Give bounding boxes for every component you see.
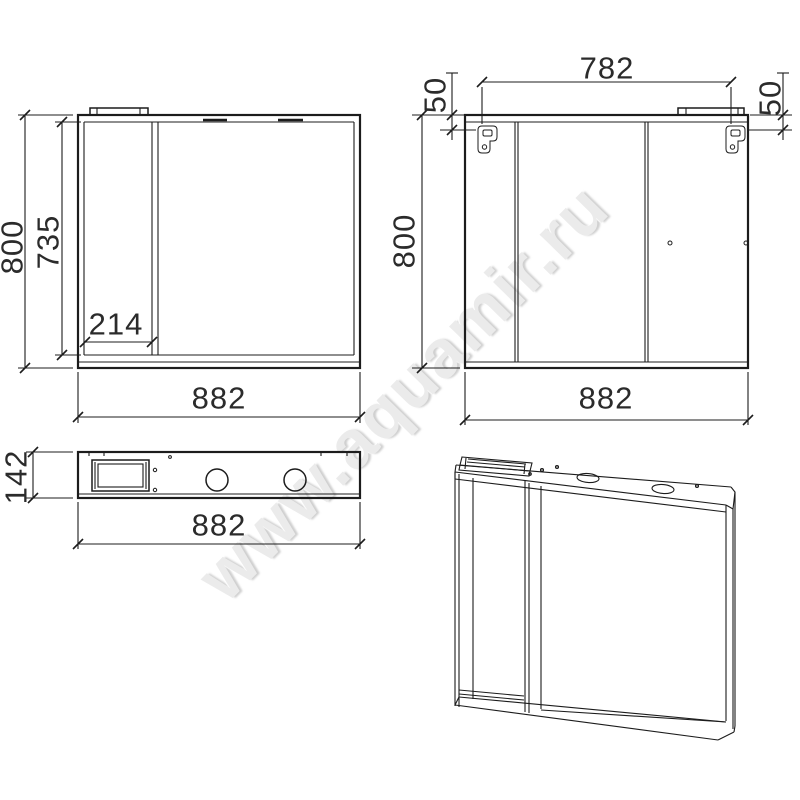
- drawing-canvas: [0, 0, 800, 800]
- dim-front-width: 882: [192, 383, 247, 414]
- iso-view: [455, 457, 735, 740]
- dim-back-left-offset: 50: [420, 77, 451, 113]
- technical-drawing-sheet: www.aquamir.ru: [0, 0, 800, 800]
- dim-front-door-width: 214: [89, 309, 144, 340]
- dim-plan-depth: 142: [1, 450, 32, 505]
- dim-front-height: 800: [0, 220, 28, 275]
- wall-hook-left-icon: [478, 126, 497, 153]
- dim-front-inner-height: 735: [33, 215, 64, 270]
- dim-plan-width: 882: [192, 510, 247, 541]
- wall-hook-right-icon: [726, 126, 745, 153]
- dim-back-height: 800: [389, 214, 420, 269]
- back-view: [412, 73, 792, 425]
- dim-back-right-offset: 50: [755, 80, 786, 116]
- door-section: [92, 460, 149, 491]
- hole-right: [284, 469, 306, 491]
- hole-left: [206, 469, 228, 491]
- dim-back-top-width: 782: [580, 53, 635, 84]
- front-view: [18, 108, 365, 423]
- dim-back-width: 882: [579, 383, 634, 414]
